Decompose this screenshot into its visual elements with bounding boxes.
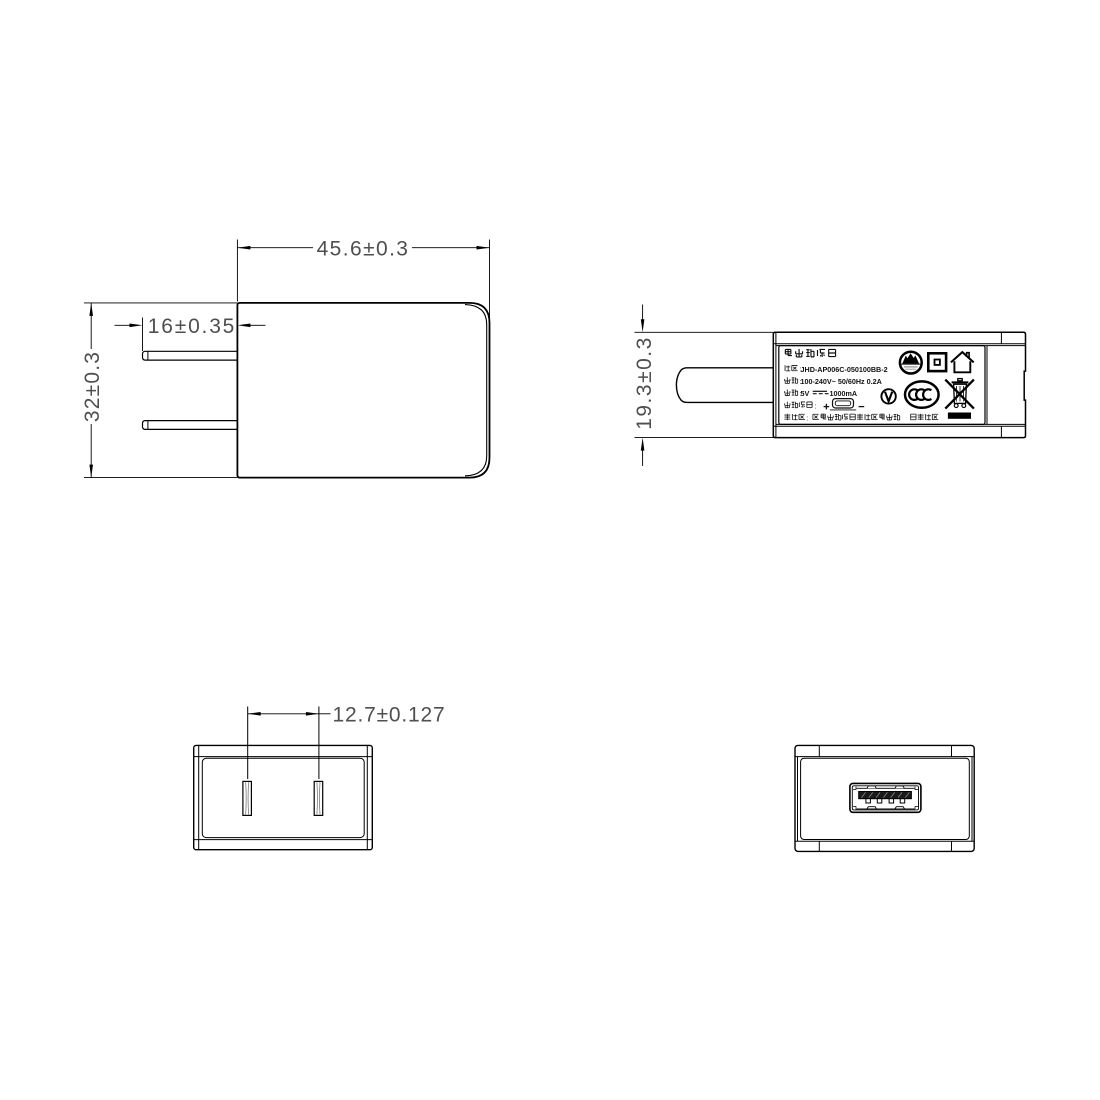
svg-text:JHD-AP006C-050100BB-2: JHD-AP006C-050100BB-2	[801, 365, 888, 374]
svg-text:32±0.3: 32±0.3	[81, 351, 104, 422]
svg-text:45.6±0.3: 45.6±0.3	[317, 238, 410, 261]
svg-text:19.3±0.3: 19.3±0.3	[633, 336, 656, 430]
svg-text:12.7±0.127: 12.7±0.127	[333, 703, 446, 726]
svg-text:1000mA: 1000mA	[830, 389, 858, 398]
svg-text:100-240V~ 50/60Hz 0.2A: 100-240V~ 50/60Hz 0.2A	[801, 377, 882, 386]
svg-text:5V: 5V	[801, 389, 810, 398]
svg-text::: :	[815, 401, 817, 410]
svg-text:16±0.35: 16±0.35	[148, 315, 236, 338]
svg-text::: :	[806, 415, 808, 422]
